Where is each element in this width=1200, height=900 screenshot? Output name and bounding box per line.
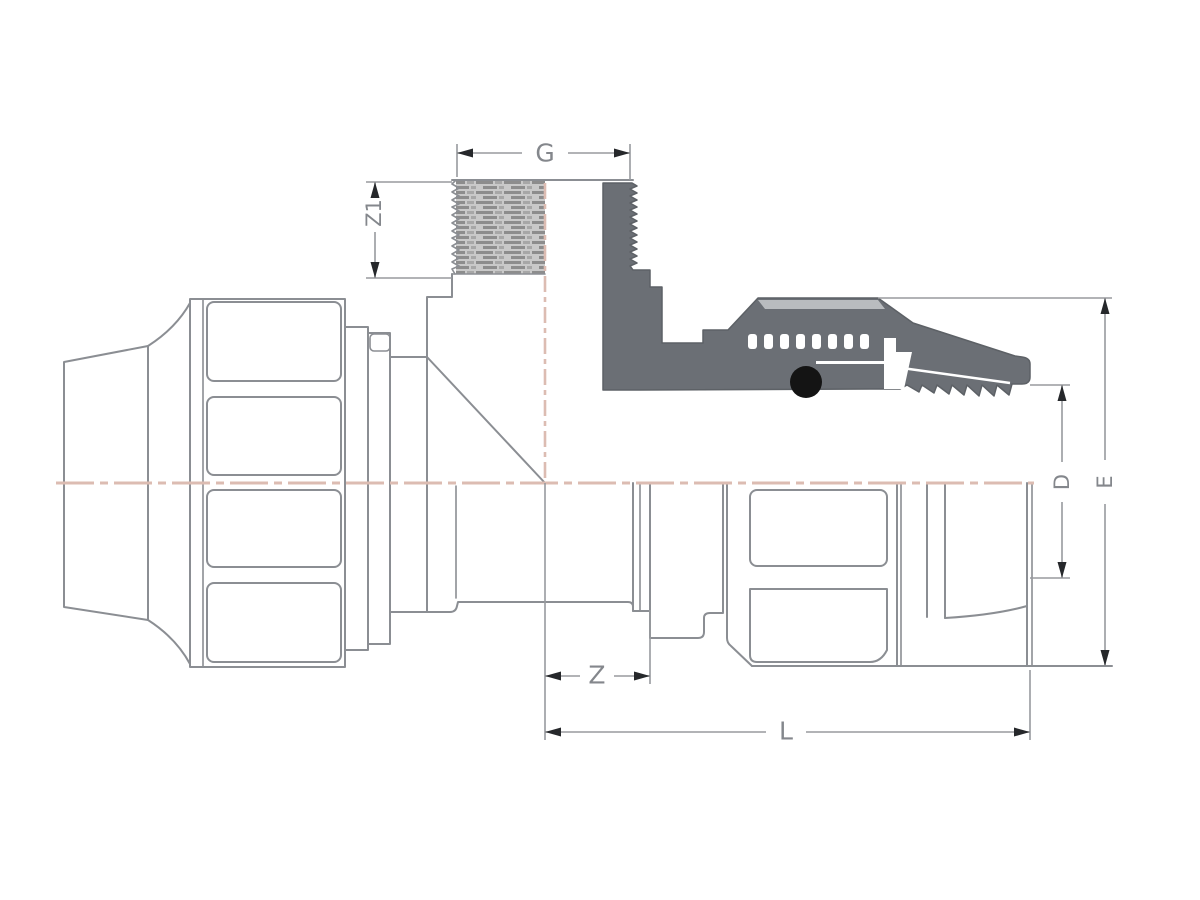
right-adapter-outline bbox=[650, 483, 723, 638]
dimension-d: D bbox=[1030, 385, 1074, 578]
left-nut-rib-1 bbox=[207, 302, 341, 381]
left-collar-step-2 bbox=[368, 333, 390, 644]
dimension-z1: Z1 bbox=[362, 182, 452, 278]
branch-boss-outline bbox=[427, 274, 452, 357]
liner-seam bbox=[816, 361, 886, 364]
fitting-diagram: G Z1 Z L bbox=[0, 0, 1200, 900]
dimension-z-label: Z bbox=[588, 661, 605, 690]
dimension-l: L bbox=[545, 670, 1030, 746]
left-collar-step-1 bbox=[345, 327, 368, 650]
right-nut-left-chamfer bbox=[727, 483, 752, 666]
dimension-z1-label: Z1 bbox=[362, 199, 386, 227]
left-nut-rib-3 bbox=[207, 490, 341, 567]
cross-section bbox=[603, 183, 1030, 398]
left-nut-rib-4 bbox=[207, 583, 341, 662]
right-nut-rib-1 bbox=[750, 490, 887, 566]
left-nut-rib-2 bbox=[207, 397, 341, 475]
thread-hatch-area bbox=[456, 180, 545, 274]
dimension-g: G bbox=[457, 139, 630, 181]
section-silhouette bbox=[603, 183, 1030, 396]
dimension-l-label: L bbox=[779, 717, 793, 746]
right-compression-end bbox=[650, 483, 1112, 666]
drawing-page: G Z1 Z L bbox=[0, 0, 1200, 900]
dimension-e-label: E bbox=[1093, 475, 1117, 488]
right-nut-rib-2 bbox=[750, 589, 887, 662]
dimension-g-label: G bbox=[535, 139, 554, 168]
body-cone-edge bbox=[427, 357, 545, 483]
body-bottom-outline bbox=[390, 602, 650, 612]
right-cap-flare-curve bbox=[945, 606, 1027, 618]
cap-top-highlight bbox=[758, 300, 885, 309]
dimension-d-label: D bbox=[1050, 474, 1074, 490]
o-ring bbox=[790, 366, 822, 398]
